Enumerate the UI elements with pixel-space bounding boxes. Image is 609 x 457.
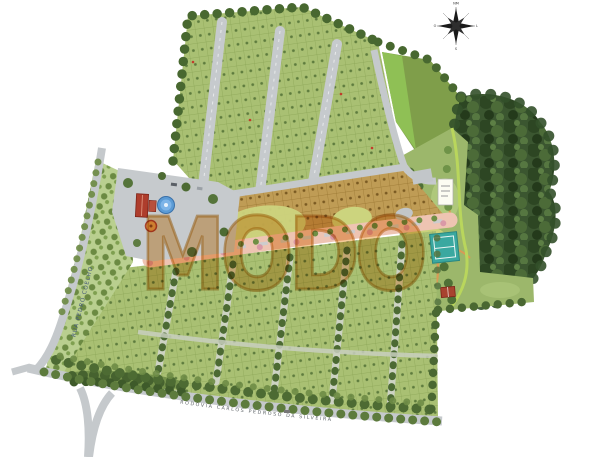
- info-sign: [438, 179, 453, 205]
- car: [284, 410, 290, 413]
- compass-label-north: NM: [453, 2, 459, 6]
- gazebo: [146, 221, 157, 232]
- lawn-patch: [480, 282, 520, 298]
- mini-court: [441, 286, 456, 297]
- fountain: [158, 197, 175, 214]
- site-plan-drawing: NM L S O RODOVIA CARLOS PEDROSO DA SILVE…: [0, 0, 609, 457]
- road-stub: [12, 367, 30, 372]
- compass-label-south: S: [455, 47, 457, 51]
- compass-label-west: O: [434, 24, 437, 28]
- site-plan: NM L S O RODOVIA CARLOS PEDROSO DA SILVE…: [0, 0, 609, 457]
- compass-label-east: L: [476, 24, 478, 28]
